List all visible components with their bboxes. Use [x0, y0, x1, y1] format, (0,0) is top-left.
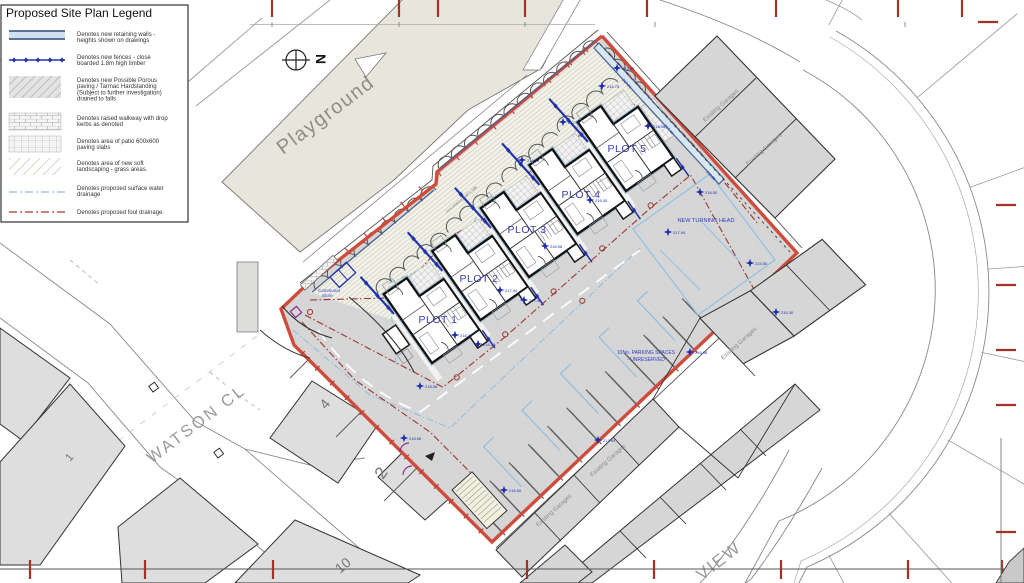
svg-text:216.50: 216.50 — [705, 190, 718, 195]
svg-text:216.75: 216.75 — [460, 333, 473, 338]
svg-text:Denotes area of patio 600x600: Denotes area of patio 600x600 — [77, 139, 160, 145]
svg-text:216.30: 216.30 — [595, 198, 608, 203]
svg-text:N: N — [313, 54, 329, 64]
svg-text:217.94: 217.94 — [603, 438, 616, 443]
svg-text:(Subject to further investigat: (Subject to further investigation) — [77, 90, 162, 96]
svg-text:PLOT 1: PLOT 1 — [419, 314, 458, 326]
svg-text:Denotes proposed foul drainage: Denotes proposed foul drainage. — [77, 210, 164, 216]
svg-text:drained to falls: drained to falls — [77, 97, 116, 103]
svg-text:paving / Tarmac Hardstanding: paving / Tarmac Hardstanding — [77, 84, 157, 90]
svg-text:Denotes proposed surface water: Denotes proposed surface water — [77, 186, 164, 192]
svg-text:heights shown on drawings: heights shown on drawings — [77, 38, 149, 44]
svg-text:216.98: 216.98 — [527, 158, 540, 163]
svg-text:215.80: 215.80 — [755, 261, 768, 266]
svg-text:VIEW: VIEW — [693, 538, 745, 583]
svg-text:217.40: 217.40 — [529, 298, 542, 303]
svg-text:- UNRESERVED: - UNRESERVED — [627, 357, 665, 363]
svg-text:216.98: 216.98 — [695, 350, 708, 355]
svg-text:Denotes new retaining walls -: Denotes new retaining walls - — [77, 32, 155, 38]
svg-text:Denotes new fences - close: Denotes new fences - close — [77, 55, 151, 61]
svg-text:paving slabs: paving slabs — [77, 145, 110, 151]
svg-text:216.50: 216.50 — [509, 488, 522, 493]
svg-text:Store: Store — [322, 293, 333, 298]
svg-text:drainage: drainage — [77, 192, 101, 198]
svg-text:216.30: 216.30 — [781, 310, 794, 315]
svg-text:NEW TURNING HEAD: NEW TURNING HEAD — [677, 218, 734, 224]
svg-text:10No. PARKING SPACES: 10No. PARKING SPACES — [617, 350, 676, 356]
svg-text:WATSON CL: WATSON CL — [144, 381, 250, 467]
svg-text:PLOT 2: PLOT 2 — [460, 273, 499, 285]
svg-text:216.75: 216.75 — [607, 84, 620, 89]
svg-text:217.40: 217.40 — [568, 120, 581, 125]
svg-text:216.98: 216.98 — [550, 244, 563, 249]
svg-text:218.06: 218.06 — [425, 384, 438, 389]
svg-text:landscaping - grass areas.: landscaping - grass areas. — [77, 167, 148, 173]
svg-text:Denotes new Possible Porous: Denotes new Possible Porous — [77, 78, 157, 84]
svg-text:216.75: 216.75 — [483, 342, 496, 347]
svg-text:218.06: 218.06 — [409, 436, 422, 441]
svg-text:217.40: 217.40 — [505, 288, 518, 293]
svg-text:PLOT 5: PLOT 5 — [608, 143, 647, 155]
svg-text:PLOT 3: PLOT 3 — [508, 224, 547, 236]
svg-text:Denotes area of new soft: Denotes area of new soft — [77, 161, 144, 167]
svg-text:kerbs as denoted: kerbs as denoted — [77, 122, 123, 128]
svg-text:217.94: 217.94 — [673, 230, 686, 235]
svg-text:215.80: 215.80 — [622, 66, 635, 71]
svg-text:boarded 1.8m high timber: boarded 1.8m high timber — [77, 61, 145, 67]
svg-text:Denotes raised walkway with dr: Denotes raised walkway with drop — [77, 116, 168, 122]
svg-text:Proposed Site Plan Legend: Proposed Site Plan Legend — [6, 6, 152, 20]
